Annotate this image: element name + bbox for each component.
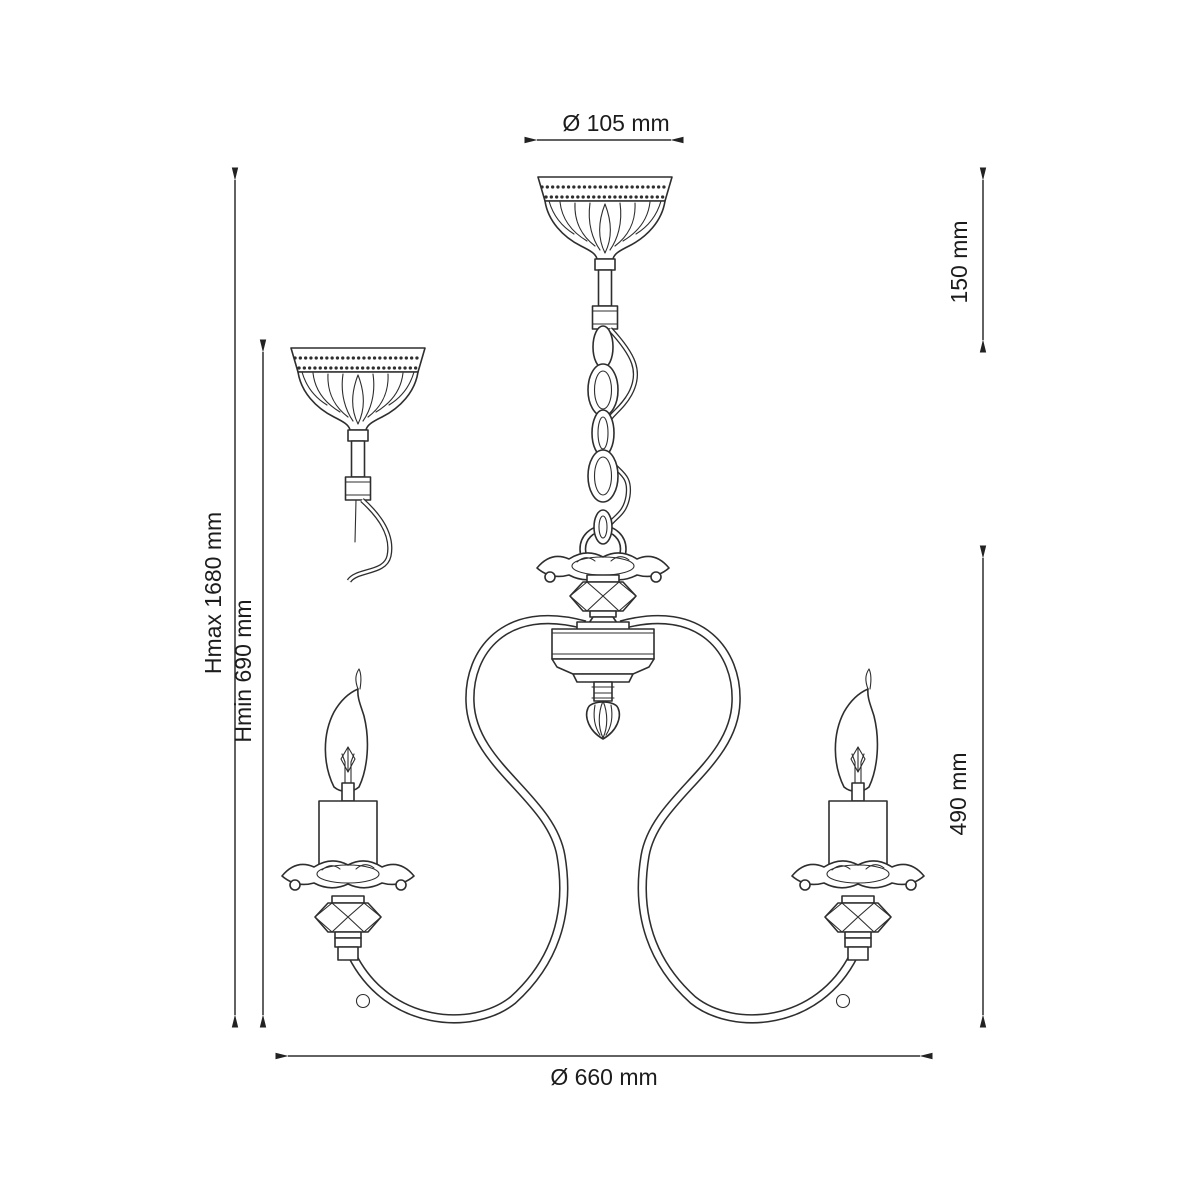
dim-label-body-diameter: Ø 660 mm (550, 1064, 657, 1090)
canopy-cord-variant-drawing (291, 348, 425, 581)
arm-right (621, 620, 856, 1019)
chandelier-diagram: Ø 105 mm 150 mm Hmax 1680 mm Hmin 690 mm… (0, 0, 1200, 1200)
candle-left (282, 669, 414, 960)
hub-skirt (552, 659, 654, 674)
candle-right (792, 669, 924, 960)
dim-label-150: 150 mm (946, 220, 972, 303)
cord-wire (355, 500, 356, 542)
dim-label-490: 490 mm (945, 752, 971, 835)
hub-crystal-bead (570, 575, 636, 617)
finial-teardrop (587, 702, 620, 739)
dim-label-hmin: Hmin 690 mm (230, 599, 256, 742)
arm-left (350, 620, 585, 1019)
dimension-drawing-canvas: Ø 105 mm 150 mm Hmax 1680 mm Hmin 690 mm… (0, 0, 1200, 1200)
dim-label-canopy-diameter: Ø 105 mm (562, 110, 669, 136)
canopy-chain-drawing (538, 177, 672, 572)
central-body-drawing (537, 553, 669, 739)
dim-label-hmax: Hmax 1680 mm (200, 512, 226, 674)
chain-last-link (594, 510, 612, 544)
